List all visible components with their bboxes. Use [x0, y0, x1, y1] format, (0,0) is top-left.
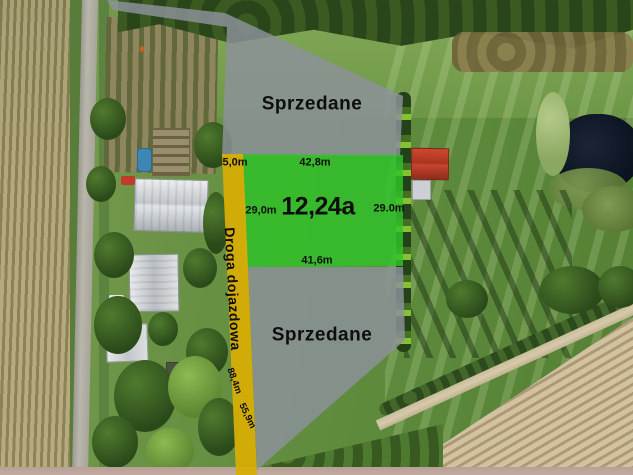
measure-plot-bottom: 41,6m [301, 256, 332, 267]
parcel-overlay [0, 0, 633, 475]
sold-area-bottom [248, 267, 405, 470]
sold-area-top [107, 0, 403, 156]
sold-label-bottom: Sprzedane [272, 326, 373, 345]
measure-road-width: 5,0m [222, 158, 247, 169]
aerial-listing-photo: Sprzedane Sprzedane 12,24a 5,0m 42,8m 29… [0, 0, 633, 475]
measure-plot-right: 29.0m [373, 204, 404, 215]
plot-area-label: 12,24a [281, 195, 354, 220]
sold-label-top: Sprzedane [262, 95, 363, 114]
measure-plot-top: 42,8m [299, 158, 330, 169]
measure-plot-left: 29,0m [245, 206, 276, 217]
